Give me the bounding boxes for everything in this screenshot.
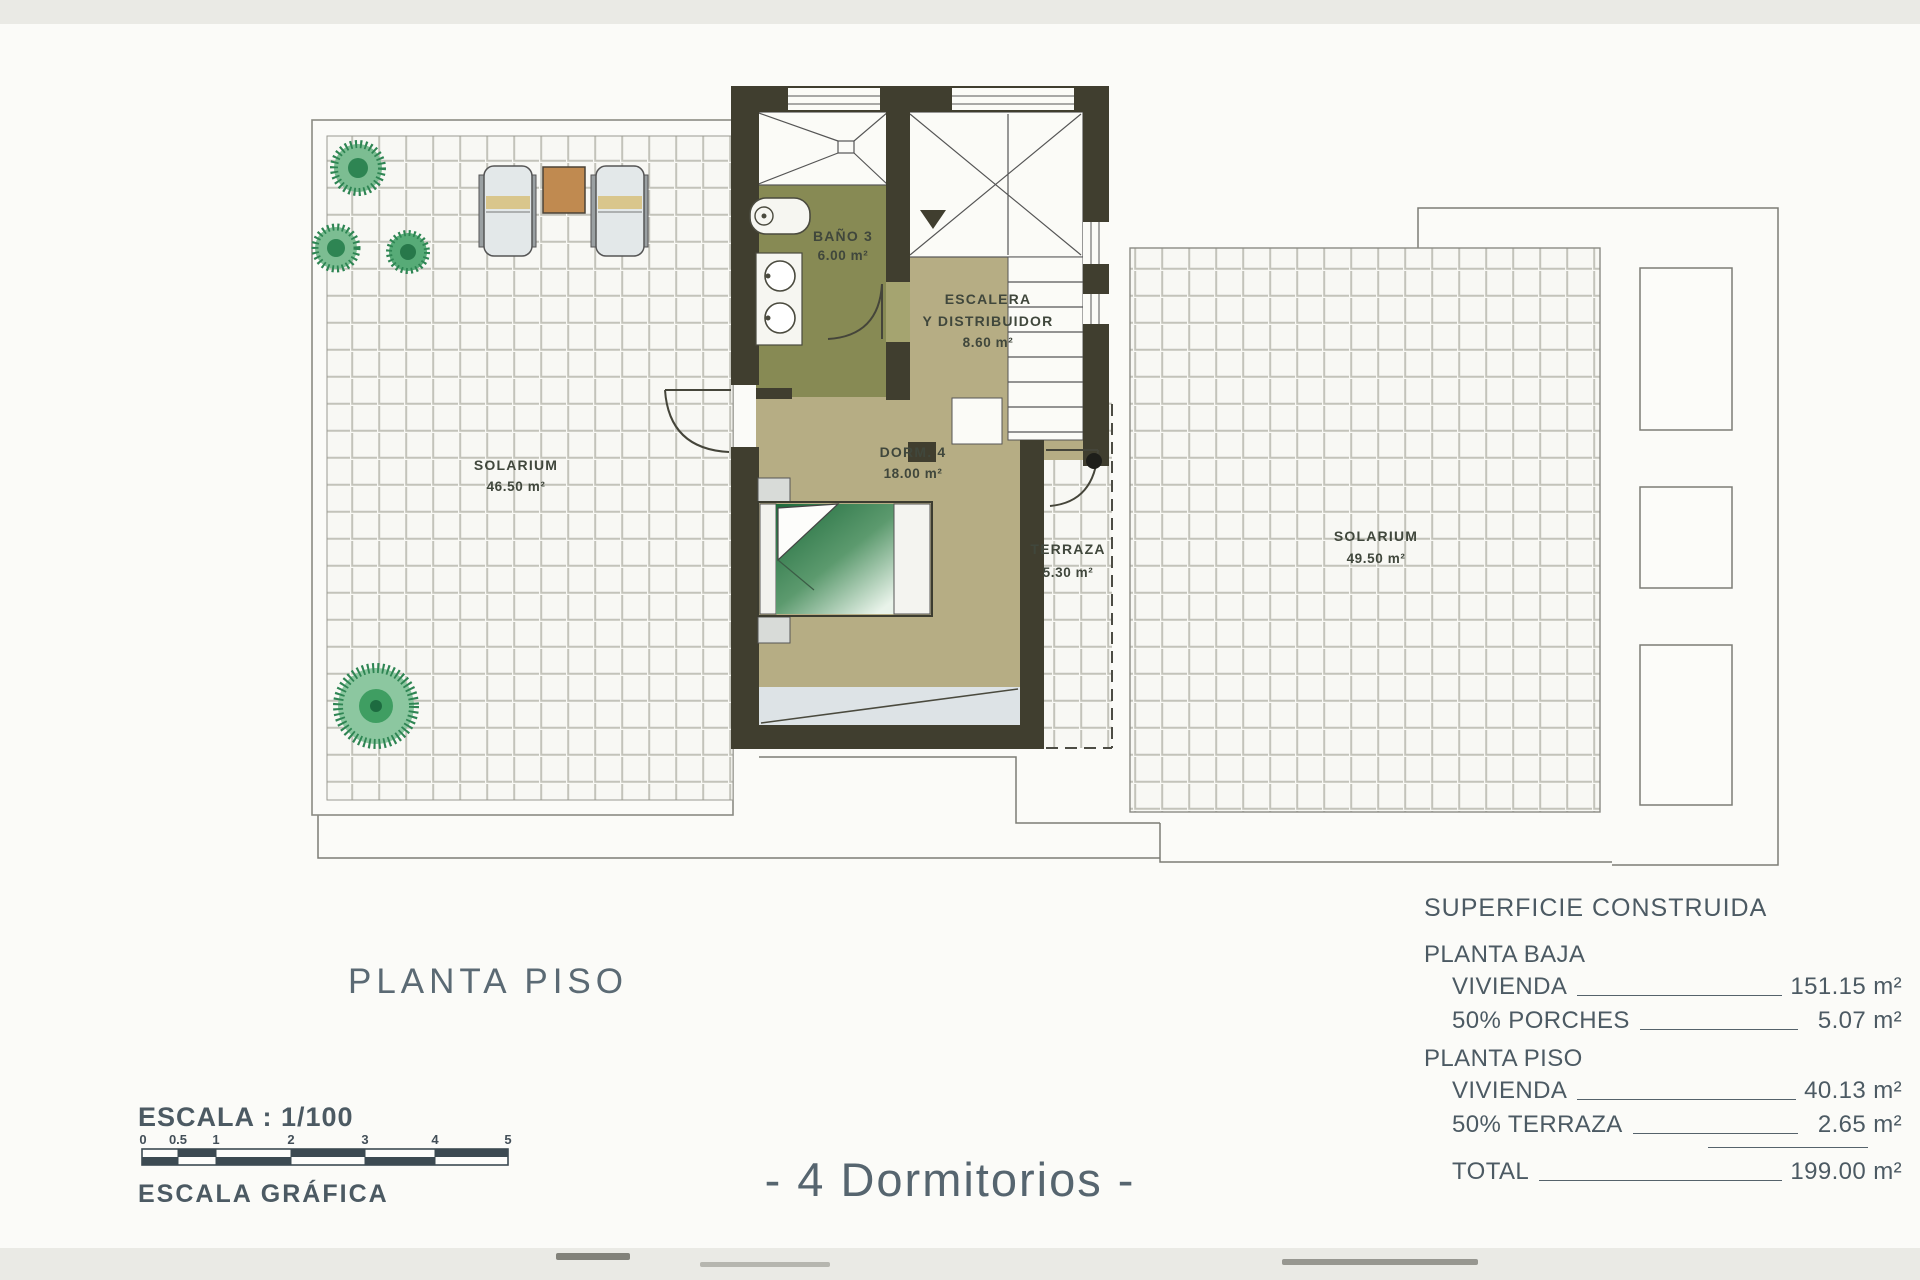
room-area-escalera: 8.60 m² xyxy=(963,335,1014,350)
room-area-terraza: 5.30 m² xyxy=(1043,565,1094,580)
leader-line xyxy=(1640,1029,1798,1030)
row-label: VIVIENDA xyxy=(1452,1077,1567,1105)
leader-line xyxy=(1577,995,1782,996)
section-heading: PLANTA BAJA xyxy=(1424,941,1902,969)
leader-line xyxy=(1539,1180,1782,1181)
room-label-bano3: BAÑO 3 xyxy=(813,227,873,244)
leader-line xyxy=(1633,1133,1798,1134)
table-row: 50% TERRAZA 2.65 m² xyxy=(1452,1111,1902,1139)
room-label-solarium-right: SOLARIUM xyxy=(1334,528,1418,544)
table-row: VIVIENDA 40.13 m² xyxy=(1452,1077,1902,1105)
room-area-solarium-left: 46.50 m² xyxy=(487,479,546,494)
rooflight xyxy=(756,112,888,185)
svg-text:2: 2 xyxy=(287,1133,294,1147)
column-marker xyxy=(1086,453,1102,469)
room-label-dorm4: DORM. 4 xyxy=(880,444,947,460)
table-title: SUPERFICIE CONSTRUIDA xyxy=(1424,894,1902,923)
room-label-escalera-1: ESCALERA xyxy=(945,291,1032,307)
graphic-scale-bar: 0 0.5 1 2 3 4 5 xyxy=(138,1133,518,1173)
room-label-terraza: TERRAZA xyxy=(1030,541,1105,557)
scale-label: ESCALA : 1/100 xyxy=(138,1102,538,1133)
planter-opening xyxy=(1640,268,1732,805)
bedrooms-caption: - 4 Dormitorios - xyxy=(690,1152,1210,1207)
plant-icon xyxy=(338,668,414,744)
sun-lounger xyxy=(591,166,648,256)
room-label-escalera-2: Y DISTRIBUIDOR xyxy=(923,313,1054,329)
room-area-dorm4: 18.00 m² xyxy=(884,466,943,481)
scale-bar-segments xyxy=(142,1149,508,1165)
svg-text:1: 1 xyxy=(212,1133,219,1147)
total-value: 199.00 m² xyxy=(1790,1158,1902,1186)
row-value: 5.07 m² xyxy=(1806,1007,1902,1035)
row-value: 151.15 m² xyxy=(1790,973,1902,1001)
row-label: VIVIENDA xyxy=(1452,973,1567,1001)
table-row: 50% PORCHES 5.07 m² xyxy=(1452,1007,1902,1035)
plan-title: PLANTA PISO xyxy=(348,962,628,1002)
table-row: VIVIENDA 151.15 m² xyxy=(1452,973,1902,1001)
section-heading: PLANTA PISO xyxy=(1424,1045,1902,1073)
row-value: 2.65 m² xyxy=(1806,1111,1902,1139)
svg-text:5: 5 xyxy=(504,1133,511,1147)
room-area-solarium-right: 49.50 m² xyxy=(1347,551,1406,566)
svg-text:4: 4 xyxy=(431,1133,439,1147)
room-area-bano3: 6.00 m² xyxy=(818,248,869,263)
bathtub-icon xyxy=(750,198,810,234)
scale-block: ESCALA : 1/100 0 0.5 1 2 3 4 5 xyxy=(138,1102,538,1209)
scale-ticks: 0 0.5 1 2 3 4 5 xyxy=(139,1133,511,1147)
double-sink-icon xyxy=(756,253,802,345)
side-table xyxy=(543,167,585,213)
row-label: 50% TERRAZA xyxy=(1452,1111,1623,1139)
leader-line xyxy=(1577,1099,1796,1100)
total-row: TOTAL 199.00 m² xyxy=(1452,1158,1902,1186)
row-label: 50% PORCHES xyxy=(1452,1007,1630,1035)
total-label: TOTAL xyxy=(1452,1158,1529,1186)
sun-lounger xyxy=(479,166,536,256)
scanned-floor-plan-page: SOLARIUM 46.50 m² BAÑO 3 6.00 m² ESCALER… xyxy=(0,0,1920,1280)
room-label-solarium-left: SOLARIUM xyxy=(474,457,558,473)
built-surface-table: SUPERFICIE CONSTRUIDA PLANTA BAJA VIVIEN… xyxy=(1424,894,1902,1192)
svg-text:0: 0 xyxy=(139,1133,146,1147)
svg-text:0.5: 0.5 xyxy=(169,1133,187,1147)
total-separator xyxy=(1708,1147,1868,1148)
row-value: 40.13 m² xyxy=(1804,1077,1902,1105)
svg-text:3: 3 xyxy=(361,1133,368,1147)
scale-graphic-label: ESCALA GRÁFICA xyxy=(138,1180,538,1209)
